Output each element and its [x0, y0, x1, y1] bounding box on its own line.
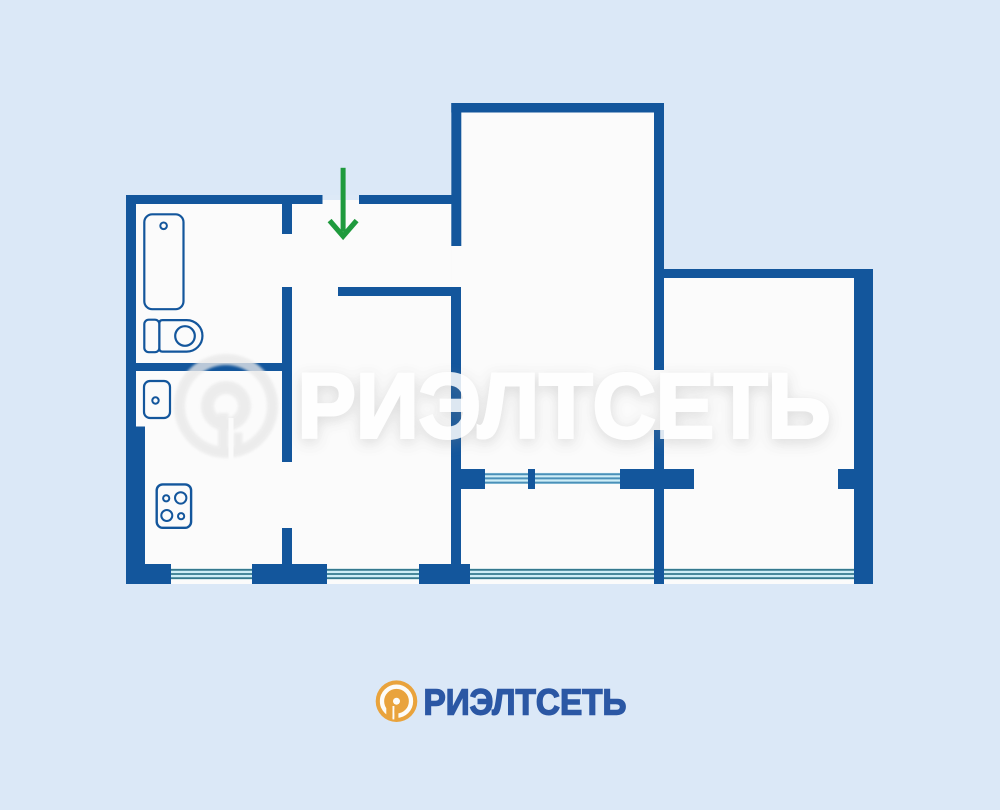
- svg-text:РИЭЛТСЕТЬ: РИЭЛТСЕТЬ: [298, 356, 831, 458]
- svg-text:РИЭЛТСЕТЬ: РИЭЛТСЕТЬ: [424, 682, 627, 723]
